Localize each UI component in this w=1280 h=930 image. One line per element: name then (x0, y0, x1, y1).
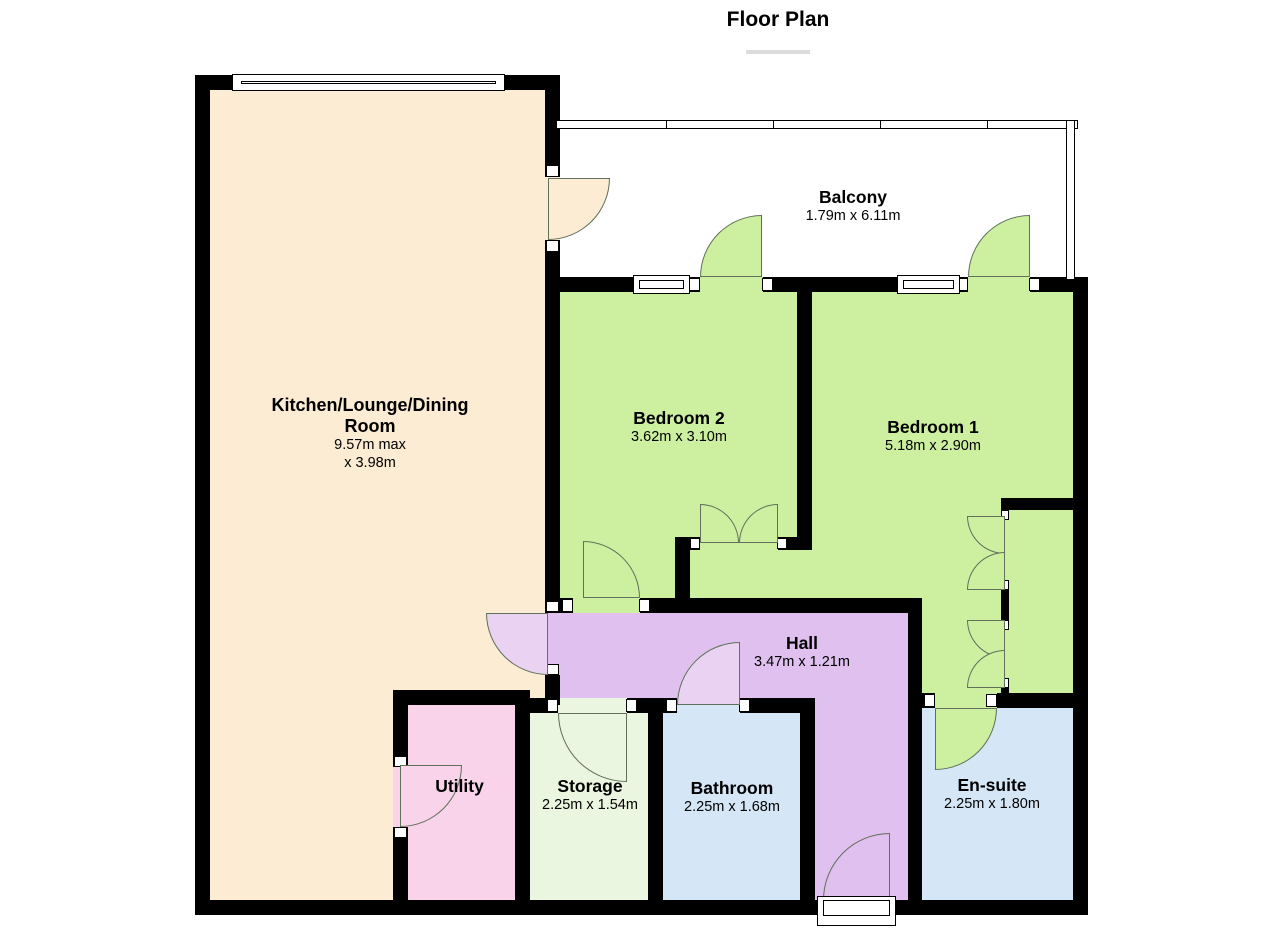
door-arc-bedroom2-balcony (700, 215, 762, 277)
wall (763, 277, 897, 292)
door-jamb (546, 240, 559, 252)
title-underline (746, 50, 810, 54)
door-arc-bedroom1-balcony (968, 215, 1030, 277)
balcony-dims: 1.79m x 6.11m (758, 208, 948, 225)
door-jamb (924, 694, 935, 707)
bedroom2-label: Bedroom 2 3.62m x 3.10m (589, 408, 769, 446)
door-jamb (639, 599, 650, 612)
bedroom2-name: Bedroom 2 (589, 408, 769, 429)
wall (797, 277, 812, 550)
balcony-railing-top (556, 120, 1078, 129)
doorway-storage (558, 698, 627, 713)
window-bedroom2 (633, 275, 690, 294)
balcony-railing-right (1066, 120, 1075, 280)
railing-post (666, 121, 667, 128)
doorway-bedroom2-hall (573, 598, 640, 613)
balcony-name: Balcony (758, 187, 948, 208)
entrance-threshold (823, 900, 890, 916)
hall-label: Hall 3.47m x 1.21m (712, 633, 892, 671)
door-jamb (1029, 278, 1040, 291)
wall (1001, 498, 1073, 510)
window-bedroom1-pane (903, 280, 954, 289)
door-jamb (666, 699, 677, 712)
door-jamb (546, 601, 559, 612)
kitchen-name-line2: Room (240, 416, 500, 437)
wall (393, 690, 530, 705)
door-jamb (689, 278, 700, 291)
bedroom1-dims: 5.18m x 2.90m (843, 438, 1023, 455)
door-jamb (394, 827, 407, 838)
nook-passage (797, 550, 812, 598)
ensuite-name: En-suite (902, 775, 1082, 796)
door-jamb (547, 699, 558, 712)
window-kitchen-pane (241, 81, 496, 84)
window-bedroom1 (897, 275, 960, 294)
railing-post (987, 121, 988, 128)
bedroom1-label: Bedroom 1 5.18m x 2.90m (843, 417, 1023, 455)
wall (393, 827, 408, 915)
wall (908, 598, 922, 900)
door-jamb (562, 599, 573, 612)
railing-post (773, 121, 774, 128)
kitchen-dims-line2: x 3.98m (240, 455, 500, 472)
wall (195, 900, 1088, 915)
ensuite-label: En-suite 2.25m x 1.80m (902, 775, 1082, 813)
kitchen-dims-line1: 9.57m max (240, 437, 500, 454)
hall-name: Hall (712, 633, 892, 654)
floor-plan: Floor Plan Kitchen/Lounge/Dining Room 9.… (0, 0, 1280, 930)
balcony-label: Balcony 1.79m x 6.11m (758, 187, 948, 225)
ensuite-dims: 2.25m x 1.80m (902, 796, 1082, 813)
window-kitchen (232, 74, 505, 91)
door-jamb (777, 538, 787, 549)
door-jamb (739, 699, 750, 712)
door-jamb (762, 278, 773, 291)
door-jamb (690, 538, 700, 549)
wall (997, 693, 1073, 708)
hall-dims: 3.47m x 1.21m (712, 654, 892, 671)
window-bedroom2-pane (639, 280, 684, 289)
wall (640, 598, 922, 613)
kitchen-label: Kitchen/Lounge/Dining Room 9.57m max x 3… (240, 395, 500, 472)
bathroom-name: Bathroom (642, 778, 822, 799)
railing-post (880, 121, 881, 128)
wall (1001, 590, 1009, 620)
door-jamb (986, 694, 997, 707)
wall (1073, 277, 1088, 915)
door-arc-kitchen-balcony (548, 178, 610, 240)
bedroom1-name: Bedroom 1 (843, 417, 1023, 438)
door-jamb (626, 699, 637, 712)
wall (545, 240, 560, 613)
page-title: Floor Plan (638, 8, 918, 32)
doorway-bedroom1-balcony (968, 277, 1030, 292)
bathroom-dims: 2.25m x 1.68m (642, 799, 822, 816)
wall (195, 75, 210, 915)
door-jamb (546, 165, 559, 177)
doorway-bedroom2-balcony (700, 277, 763, 292)
bedroom2-dims: 3.62m x 3.10m (589, 429, 769, 446)
bathroom-label: Bathroom 2.25m x 1.68m (642, 778, 822, 816)
kitchen-name-line1: Kitchen/Lounge/Dining (240, 395, 500, 416)
